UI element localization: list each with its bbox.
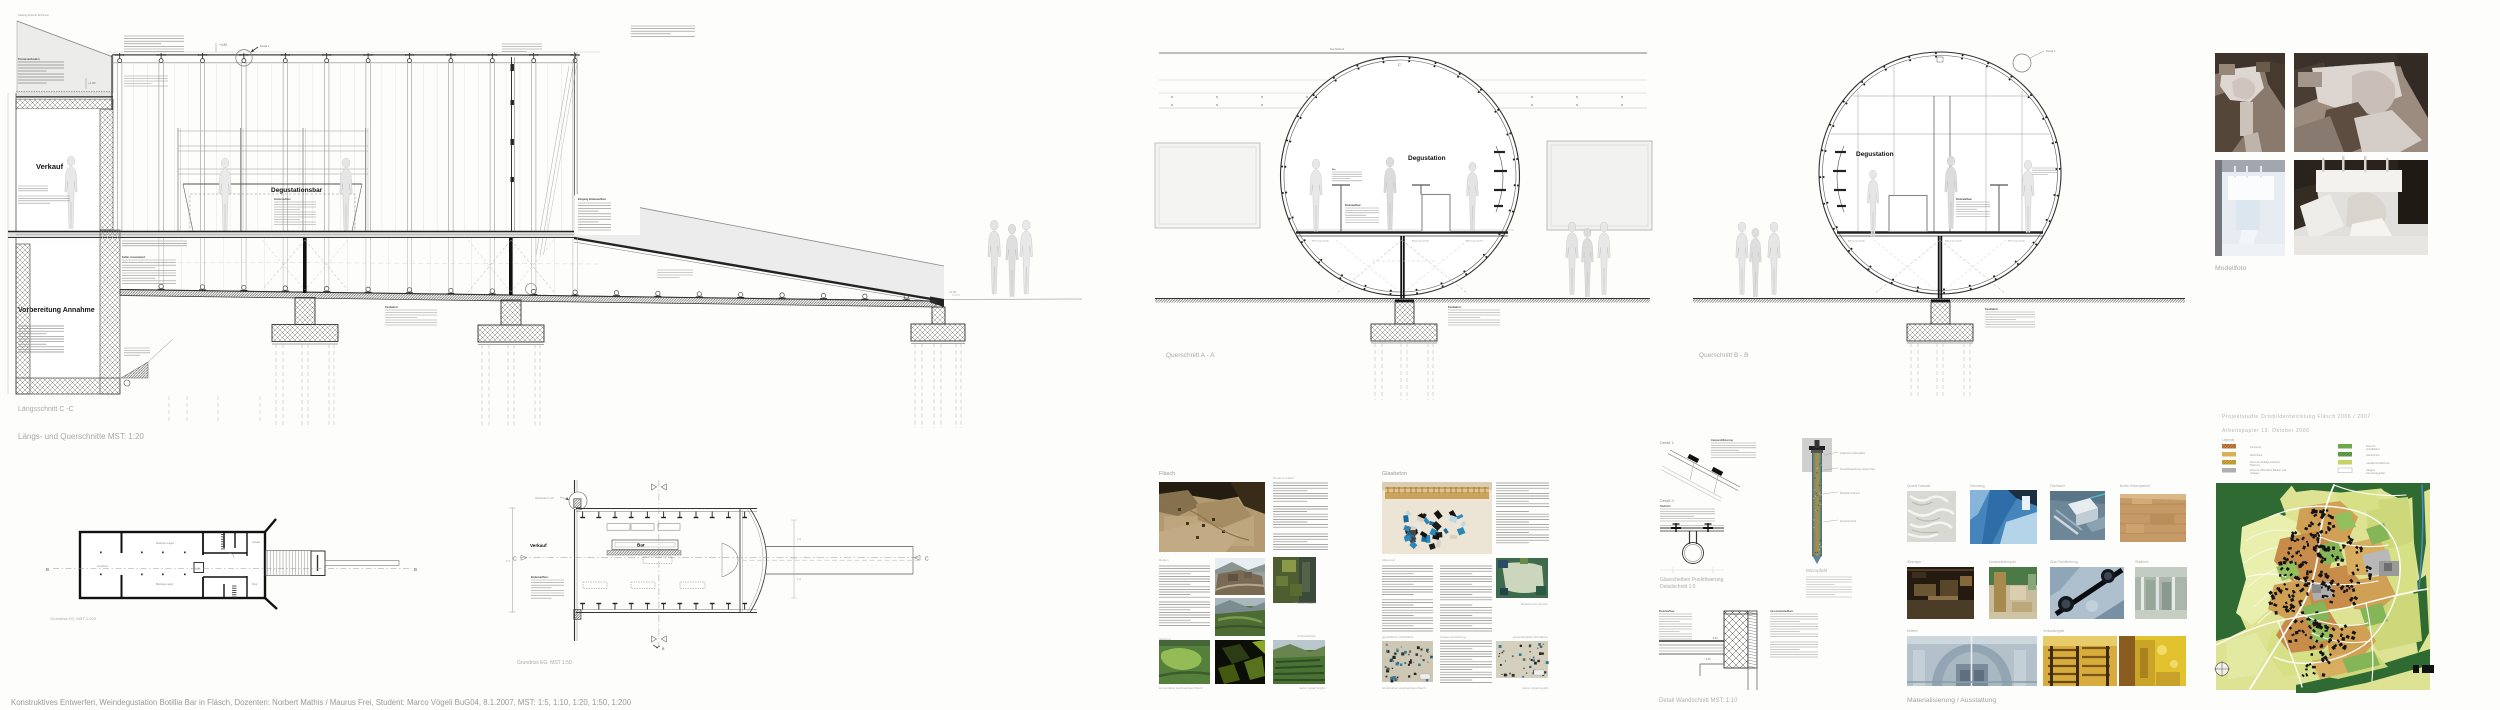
svg-text:Belastung verteilt: Belastung verteilt xyxy=(1848,240,1865,243)
svg-text:gesandstrahlte Oberfläche: gesandstrahlte Oberfläche xyxy=(1513,635,1549,639)
svg-text:Wohnzone: Wohnzone xyxy=(2250,453,2263,457)
svg-text:Verkaufsregale: Verkaufsregale xyxy=(2043,629,2064,633)
svg-text:B: B xyxy=(414,567,417,572)
svg-text:Arbeitspapier 13. Oktober 2006: Arbeitspapier 13. Oktober 2006 xyxy=(2222,428,2310,434)
svg-text:Längs- und Querschnitte MST: 1: Längs- und Querschnitte MST: 1:20 xyxy=(18,432,144,441)
svg-text:Kernzone: Kernzone xyxy=(2250,445,2262,449)
svg-text:Belastung verteilt: Belastung verteilt xyxy=(1412,240,1429,243)
svg-text:Nutzung: Nutzung xyxy=(2250,463,2260,467)
svg-text:Zusatzbewehrung Leerter Zug: Zusatzbewehrung Leerter Zug xyxy=(1840,467,1875,471)
svg-text:Bodenaufbau:: Bodenaufbau: xyxy=(531,575,549,579)
svg-text:Annahme: Annahme xyxy=(97,564,109,568)
svg-text:Verkauf: Verkauf xyxy=(252,541,260,544)
svg-text:Belastung verteilt: Belastung verteilt xyxy=(2008,240,2025,243)
svg-text:Materialisierung / Ausstattung: Materialisierung / Ausstattung xyxy=(1907,697,1996,704)
svg-text:Fläsch: Fläsch xyxy=(1159,471,1175,477)
svg-text:Kellerei: Kellerei xyxy=(1907,629,1918,633)
svg-text:Bar: Bar xyxy=(637,543,645,548)
svg-text:Glaspunktfixierung: Glaspunktfixierung xyxy=(1711,439,1733,442)
svg-text:Trockenmauern: Trockenmauern xyxy=(1295,601,1316,605)
svg-text:Zusammensetzung: Zusammensetzung xyxy=(1440,635,1466,639)
svg-text:Bar: Bar xyxy=(1332,169,1336,171)
svg-text:Quarzit Fassade: Quarzit Fassade xyxy=(1907,484,1931,488)
svg-text:Glasscheiben Punktfixierung: Glasscheiben Punktfixierung xyxy=(1660,577,1724,583)
svg-text:Zementmörtel: Zementmörtel xyxy=(1840,519,1856,523)
svg-text:Gartenzone: Gartenzone xyxy=(2366,453,2380,457)
svg-text:Bodenaufbau:: Bodenaufbau: xyxy=(1956,198,1972,201)
svg-text:Terrassenboden: Terrassenboden xyxy=(18,57,40,61)
svg-text:-0.08: -0.08 xyxy=(1712,637,1718,640)
svg-text:Belastung verteilt: Belastung verteilt xyxy=(1945,240,1962,243)
svg-text:konstruktion weinbauhaus fläsc: konstruktion weinbauhaus fläsch xyxy=(1159,686,1203,690)
svg-text:+4.80: +4.80 xyxy=(219,43,227,47)
svg-text:Eingang Bodenaufbau:: Eingang Bodenaufbau: xyxy=(578,197,607,201)
svg-text:Querschnitt A - A: Querschnitt A - A xyxy=(1166,352,1215,359)
svg-text:+0.00: +0.00 xyxy=(949,290,957,294)
svg-text:geschliffene Oberfläche: geschliffene Oberfläche xyxy=(1382,635,1414,639)
svg-text:Boden Eichenparkett: Boden Eichenparkett xyxy=(2120,484,2150,488)
svg-text:+4.80: +4.80 xyxy=(88,81,96,85)
svg-text:C: C xyxy=(925,557,929,563)
svg-text:Degustationsbar: Degustationsbar xyxy=(271,187,323,194)
svg-text:marco vögeli bug04: marco vögeli bug04 xyxy=(1299,686,1326,690)
svg-text:Querschnitt B - B: Querschnitt B - B xyxy=(1699,352,1749,359)
svg-text:Fundation:: Fundation: xyxy=(385,305,399,309)
svg-text:Pernat von Fläsch: Pernat von Fläsch xyxy=(1273,476,1294,480)
svg-text:Bodenaufbau: Bodenaufbau xyxy=(1659,610,1675,613)
svg-text:Glasbeton: Glasbeton xyxy=(1382,471,1407,477)
svg-text:1.6: 1.6 xyxy=(797,577,801,581)
svg-text:Halberg Absenkt Botzinsse: Halberg Absenkt Botzinsse xyxy=(18,13,50,17)
svg-text:Keller-Ausenwand:: Keller-Ausenwand: xyxy=(122,255,146,259)
svg-text:Fundation:: Fundation: xyxy=(1985,307,1999,311)
svg-text:Bodenaufbau: Bodenaufbau xyxy=(274,197,291,201)
svg-text:Gemeindegebiet: Gemeindegebiet xyxy=(2366,471,2385,475)
svg-text:1.5: 1.5 xyxy=(506,559,510,563)
svg-text:marco vögeli bug04: marco vögeli bug04 xyxy=(1522,686,1549,690)
svg-text:Barrique Lager: Barrique Lager xyxy=(156,582,173,586)
svg-text:Belastung verteilt: Belastung verteilt xyxy=(1466,240,1483,243)
svg-text:Dämmung: Dämmung xyxy=(1970,484,1985,488)
svg-text:konstruktion weinbauhaus fläsc: konstruktion weinbauhaus fläsch xyxy=(1382,686,1426,690)
svg-text:Verkauf: Verkauf xyxy=(530,543,547,548)
svg-text:Stahlrohr: Stahlrohr xyxy=(1660,505,1671,508)
svg-text:Anlagen: Anlagen xyxy=(2250,471,2260,475)
svg-text:Grundriss EG, MST 1:200: Grundriss EG, MST 1:200 xyxy=(50,616,97,621)
svg-text:Grundriss EG. MST 1:50: Grundriss EG. MST 1:50 xyxy=(517,660,572,666)
svg-text:Region: Region xyxy=(1159,558,1169,562)
svg-text:Detail 2:: Detail 2: xyxy=(1660,498,1675,503)
svg-text:Glas Punktfixierung: Glas Punktfixierung xyxy=(2050,560,2078,564)
svg-text:Ortsansichten: Ortsansichten xyxy=(1297,634,1316,638)
svg-text:polierbore Ankerplatte: polierbore Ankerplatte xyxy=(1840,451,1866,455)
svg-text:Belastung verteilt: Belastung verteilt xyxy=(1312,240,1329,243)
svg-text:Legende: Legende xyxy=(2222,438,2235,442)
svg-text:C: C xyxy=(1398,62,1401,67)
svg-text:Micropfahl: Micropfahl xyxy=(1806,568,1827,573)
svg-text:Bodenaufbau:: Bodenaufbau: xyxy=(1345,204,1361,207)
svg-text:Fundation:: Fundation: xyxy=(1448,305,1462,309)
svg-text:-0.26: -0.26 xyxy=(1705,658,1711,661)
svg-text:Aussenwandaufbau:: Aussenwandaufbau: xyxy=(1770,610,1794,613)
svg-text:Konstruktives Entwerfen, Weind: Konstruktives Entwerfen, Weindegustation… xyxy=(11,698,632,707)
svg-text:Detail 1: Detail 1 xyxy=(260,44,270,48)
svg-text:Flachstahl: Flachstahl xyxy=(2050,484,2065,488)
svg-text:Rücklüft verbund: Rücklüft verbund xyxy=(1840,491,1860,495)
svg-text:Degustation: Degustation xyxy=(1856,151,1894,158)
svg-text:Detail Wandschnitt MST: 1:10: Detail Wandschnitt MST: 1:10 xyxy=(1659,698,1738,704)
svg-text:B: B xyxy=(46,567,49,572)
svg-text:Badezimmer fenster: Badezimmer fenster xyxy=(1521,602,1548,606)
svg-text:Glastüren: Glastüren xyxy=(2135,560,2149,564)
svg-text:Landwirtschaftszone: Landwirtschaftszone xyxy=(2366,461,2390,465)
svg-text:1.5: 1.5 xyxy=(797,537,801,541)
svg-text:Detail 1:: Detail 1: xyxy=(1660,440,1675,445)
svg-text:Grünflächen: Grünflächen xyxy=(2366,447,2381,451)
svg-text:Projektstudie Ortsbildentwickl: Projektstudie Ortsbildentwicklung Fläsch… xyxy=(2222,414,2371,420)
svg-text:Degustation: Degustation xyxy=(1408,155,1446,162)
svg-text:Verkauf: Verkauf xyxy=(36,162,64,171)
svg-text:Kunststoffdeckputz: Kunststoffdeckputz xyxy=(1989,560,2016,564)
svg-text:C: C xyxy=(513,557,517,563)
svg-text:Tank: Tank xyxy=(252,583,258,586)
svg-text:Detail 2: Detail 2 xyxy=(2046,49,2056,53)
svg-text:Flaschen Lager: Flaschen Lager xyxy=(156,541,174,545)
svg-text:Modellfoto: Modellfoto xyxy=(2215,265,2247,272)
svg-text:Detailschnitt 1:5: Detailschnitt 1:5 xyxy=(1660,584,1696,590)
svg-text:Weinlager: Weinlager xyxy=(1907,560,1922,564)
svg-text:Dachablauf: Dachablauf xyxy=(1330,47,1344,51)
svg-text:Allgemein: Allgemein xyxy=(1382,558,1396,562)
svg-text:Längsschnitt C -C: Längsschnitt C -C xyxy=(18,406,74,413)
svg-text:Wandateil 1:10: Wandateil 1:10 xyxy=(535,496,554,500)
